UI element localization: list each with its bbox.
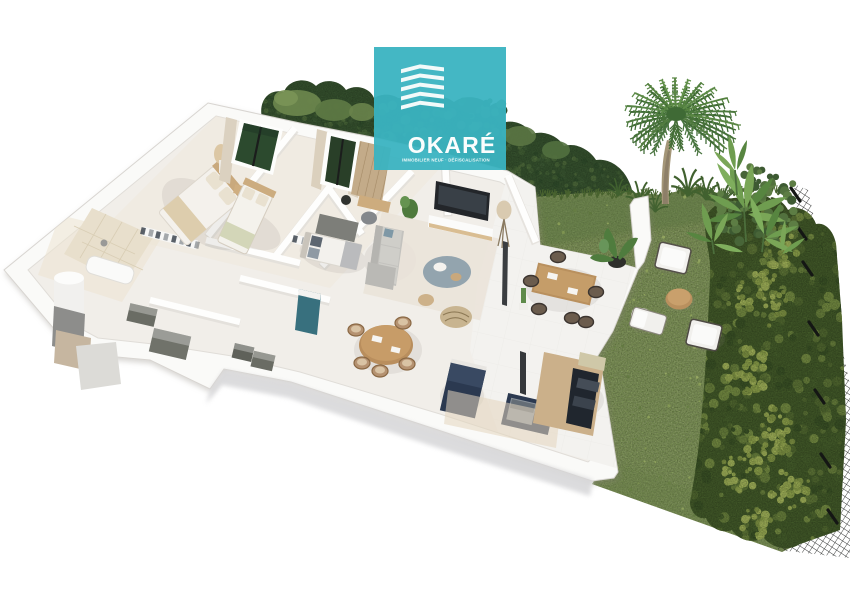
- svg-text:OKARÉ: OKARÉ: [408, 131, 497, 158]
- svg-text:IMMOBILIER NEUF · DÉFISCALISAT: IMMOBILIER NEUF · DÉFISCALISATION: [402, 158, 490, 163]
